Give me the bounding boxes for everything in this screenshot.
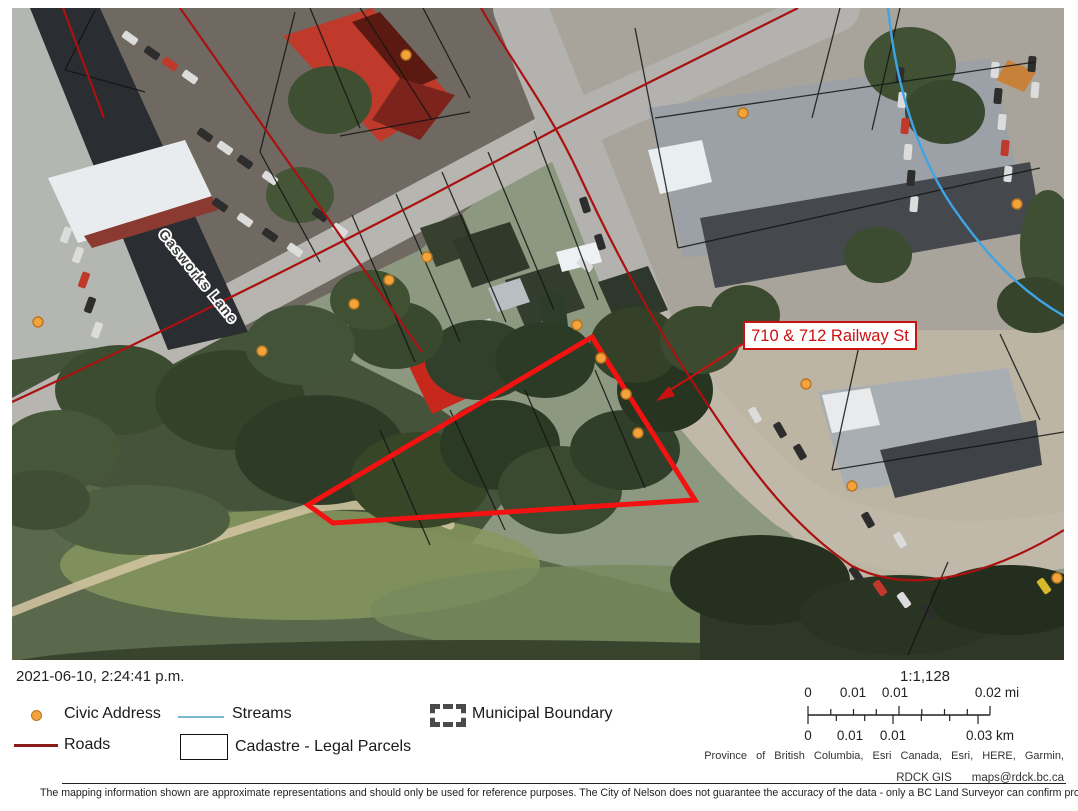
gis-map-page: Gasworks Lane 710 & 712 Railway St 2021-… — [0, 0, 1078, 811]
municipal-boundary-icon — [430, 704, 466, 727]
legend-streams: Streams — [232, 705, 292, 723]
legend-civic-address: Civic Address — [64, 705, 161, 723]
attribution: Province of British Columbia, Esri Canad… — [704, 750, 1064, 762]
map-canvas[interactable]: Gasworks Lane 710 & 712 Railway St — [12, 8, 1064, 660]
aerial-map: Gasworks Lane 710 & 712 Railway St — [12, 8, 1064, 660]
scale-km-1: 0.01 — [837, 728, 863, 743]
scale-km-2: 0.01 — [880, 728, 906, 743]
scale-ratio: 1:1,128 — [900, 668, 950, 685]
map-footer: 2021-06-10, 2:24:41 p.m. Civic Address S… — [0, 660, 1078, 811]
roads-icon — [14, 744, 58, 747]
scale-mi-1: 0.01 — [840, 685, 866, 700]
scale-km-3: 0.03 km — [966, 728, 1014, 743]
scale-bar — [800, 704, 1010, 726]
scale-mi-2: 0.01 — [882, 685, 908, 700]
scale-mi-3: 0.02 mi — [975, 685, 1019, 700]
callout-label: 710 & 712 Railway St — [751, 327, 909, 345]
disclaimer: The mapping information shown are approx… — [40, 787, 1068, 799]
streams-icon — [178, 716, 224, 718]
legend-cadastre: Cadastre - Legal Parcels — [235, 738, 411, 756]
scale-mi-0: 0 — [804, 685, 812, 700]
cadastre-icon — [180, 734, 228, 760]
legend-roads: Roads — [64, 736, 110, 754]
civic-address-icon — [31, 710, 42, 721]
footer-divider — [62, 783, 1066, 784]
timestamp: 2021-06-10, 2:24:41 p.m. — [16, 668, 184, 685]
scale-km-0: 0 — [804, 728, 812, 743]
legend-municipal-boundary: Municipal Boundary — [472, 705, 613, 723]
